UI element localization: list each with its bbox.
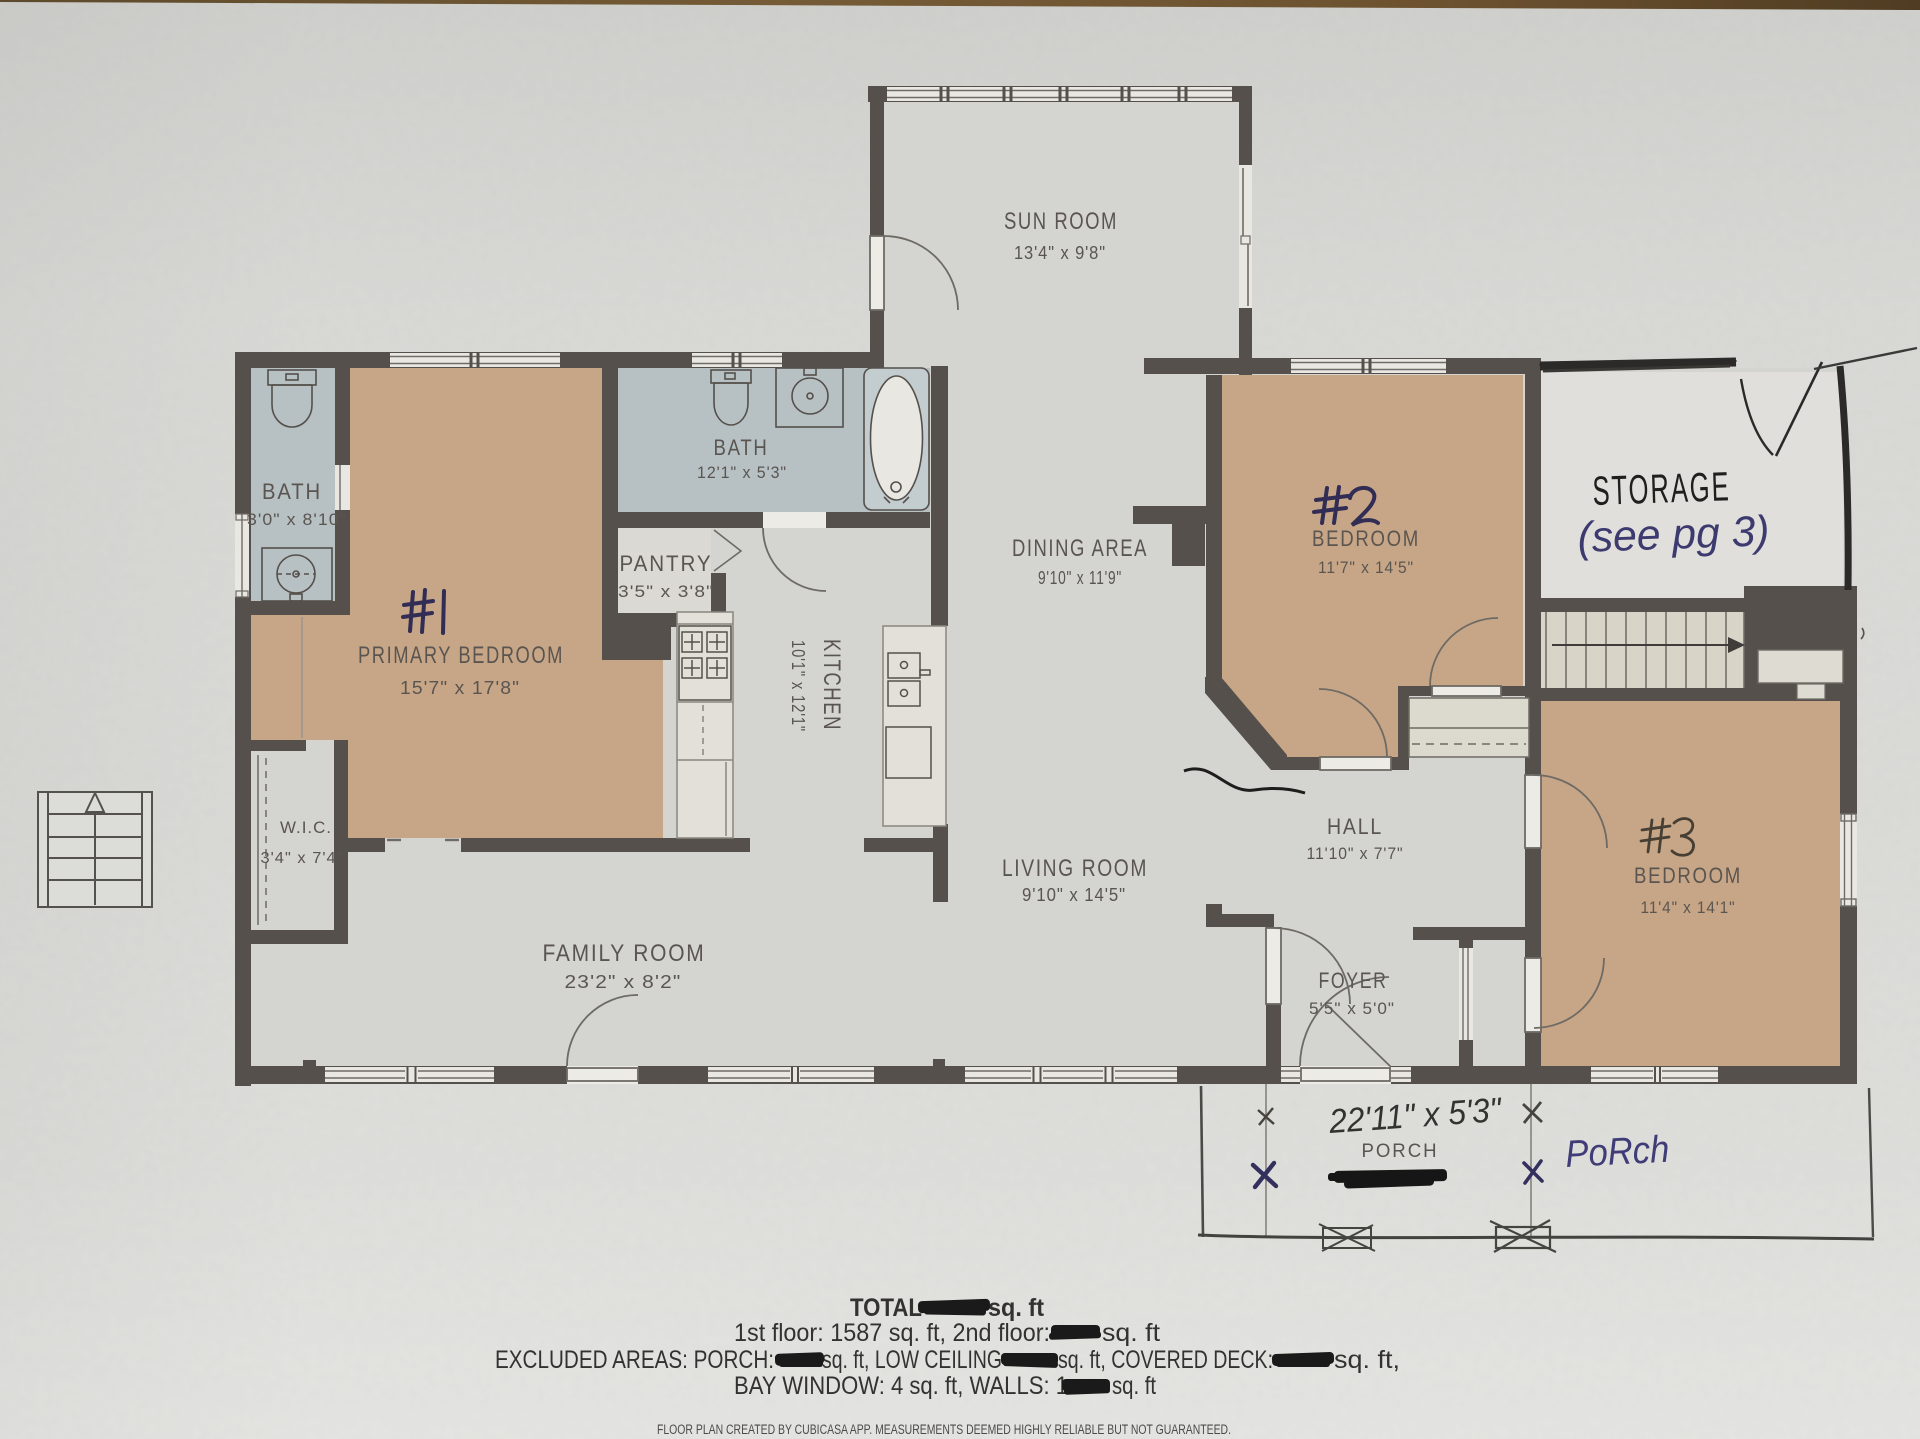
svg-text:13'4" x 9'8": 13'4" x 9'8" <box>1014 243 1106 263</box>
svg-text:3'5" x 3'8": 3'5" x 3'8" <box>618 582 714 601</box>
svg-text:sq. ft: sq. ft <box>1102 1319 1160 1347</box>
svg-text:FLOOR PLAN CREATED BY CUBICASA: FLOOR PLAN CREATED BY CUBICASA APP. MEAS… <box>657 1422 1231 1437</box>
svg-text:PRIMARY BEDROOM: PRIMARY BEDROOM <box>358 642 564 669</box>
svg-text:9'10" x 11'9": 9'10" x 11'9" <box>1038 568 1122 588</box>
svg-text:BATH: BATH <box>262 479 322 504</box>
svg-text:KITCHEN: KITCHEN <box>818 639 845 731</box>
svg-text:HALL: HALL <box>1327 814 1383 839</box>
svg-text:EXCLUDED AREAS: PORCH:: EXCLUDED AREAS: PORCH: <box>495 1346 774 1374</box>
svg-text:TOTAL: TOTAL <box>850 1294 922 1322</box>
svg-text:sq. ft: sq. ft <box>988 1294 1045 1322</box>
svg-text:FAMILY ROOM: FAMILY ROOM <box>543 940 706 967</box>
svg-text:9'10" x 14'5": 9'10" x 14'5" <box>1022 885 1126 905</box>
svg-text:sq. ft,: sq. ft, <box>1334 1346 1400 1374</box>
svg-text:5'5" x 5'0": 5'5" x 5'0" <box>1309 999 1395 1018</box>
svg-text:15'7" x 17'8": 15'7" x 17'8" <box>400 678 520 698</box>
svg-text:11'4" x 14'1": 11'4" x 14'1" <box>1641 898 1736 917</box>
svg-text:23'2" x 8'2": 23'2" x 8'2" <box>565 972 682 992</box>
svg-text:3'4" x 7'4": 3'4" x 7'4" <box>261 850 344 867</box>
svg-text:STORAGE: STORAGE <box>1592 463 1732 514</box>
svg-text:sq. ft, LOW CEILING: sq. ft, LOW CEILING <box>822 1346 1002 1374</box>
svg-text:10'1" x 12'1": 10'1" x 12'1" <box>788 640 808 732</box>
svg-text:PANTRY: PANTRY <box>620 551 713 576</box>
svg-text:(see pg 3): (see pg 3) <box>1577 507 1771 562</box>
svg-text:DINING AREA: DINING AREA <box>1012 535 1148 562</box>
svg-text:BATH: BATH <box>714 435 769 460</box>
svg-text:BAY WINDOW: 4 sq. ft, WALLS: 1: BAY WINDOW: 4 sq. ft, WALLS: 1 <box>734 1372 1068 1400</box>
svg-text:LIVING ROOM: LIVING ROOM <box>1002 855 1148 882</box>
svg-text:1st floor: 1587 sq. ft, 2nd fl: 1st floor: 1587 sq. ft, 2nd floor: <box>734 1319 1050 1347</box>
svg-text:W.I.C.: W.I.C. <box>280 818 332 837</box>
svg-text:BEDROOM: BEDROOM <box>1312 526 1420 551</box>
svg-text:BEDROOM: BEDROOM <box>1634 863 1742 888</box>
svg-text:3'0" x 8'10": 3'0" x 8'10" <box>247 510 347 529</box>
svg-text:FOYER: FOYER <box>1319 968 1388 993</box>
svg-text:11'7" x 14'5": 11'7" x 14'5" <box>1318 558 1414 577</box>
svg-text:PORCH: PORCH <box>1362 1141 1439 1162</box>
svg-text:PoRch: PoRch <box>1564 1129 1670 1176</box>
svg-text:12'1" x 5'3": 12'1" x 5'3" <box>697 463 787 482</box>
svg-text:sq. ft: sq. ft <box>1112 1372 1156 1400</box>
svg-text:sq. ft, COVERED DECK:: sq. ft, COVERED DECK: <box>1058 1346 1273 1374</box>
svg-text:11'10" x 7'7": 11'10" x 7'7" <box>1307 844 1404 863</box>
svg-text:SUN ROOM: SUN ROOM <box>1004 208 1118 235</box>
